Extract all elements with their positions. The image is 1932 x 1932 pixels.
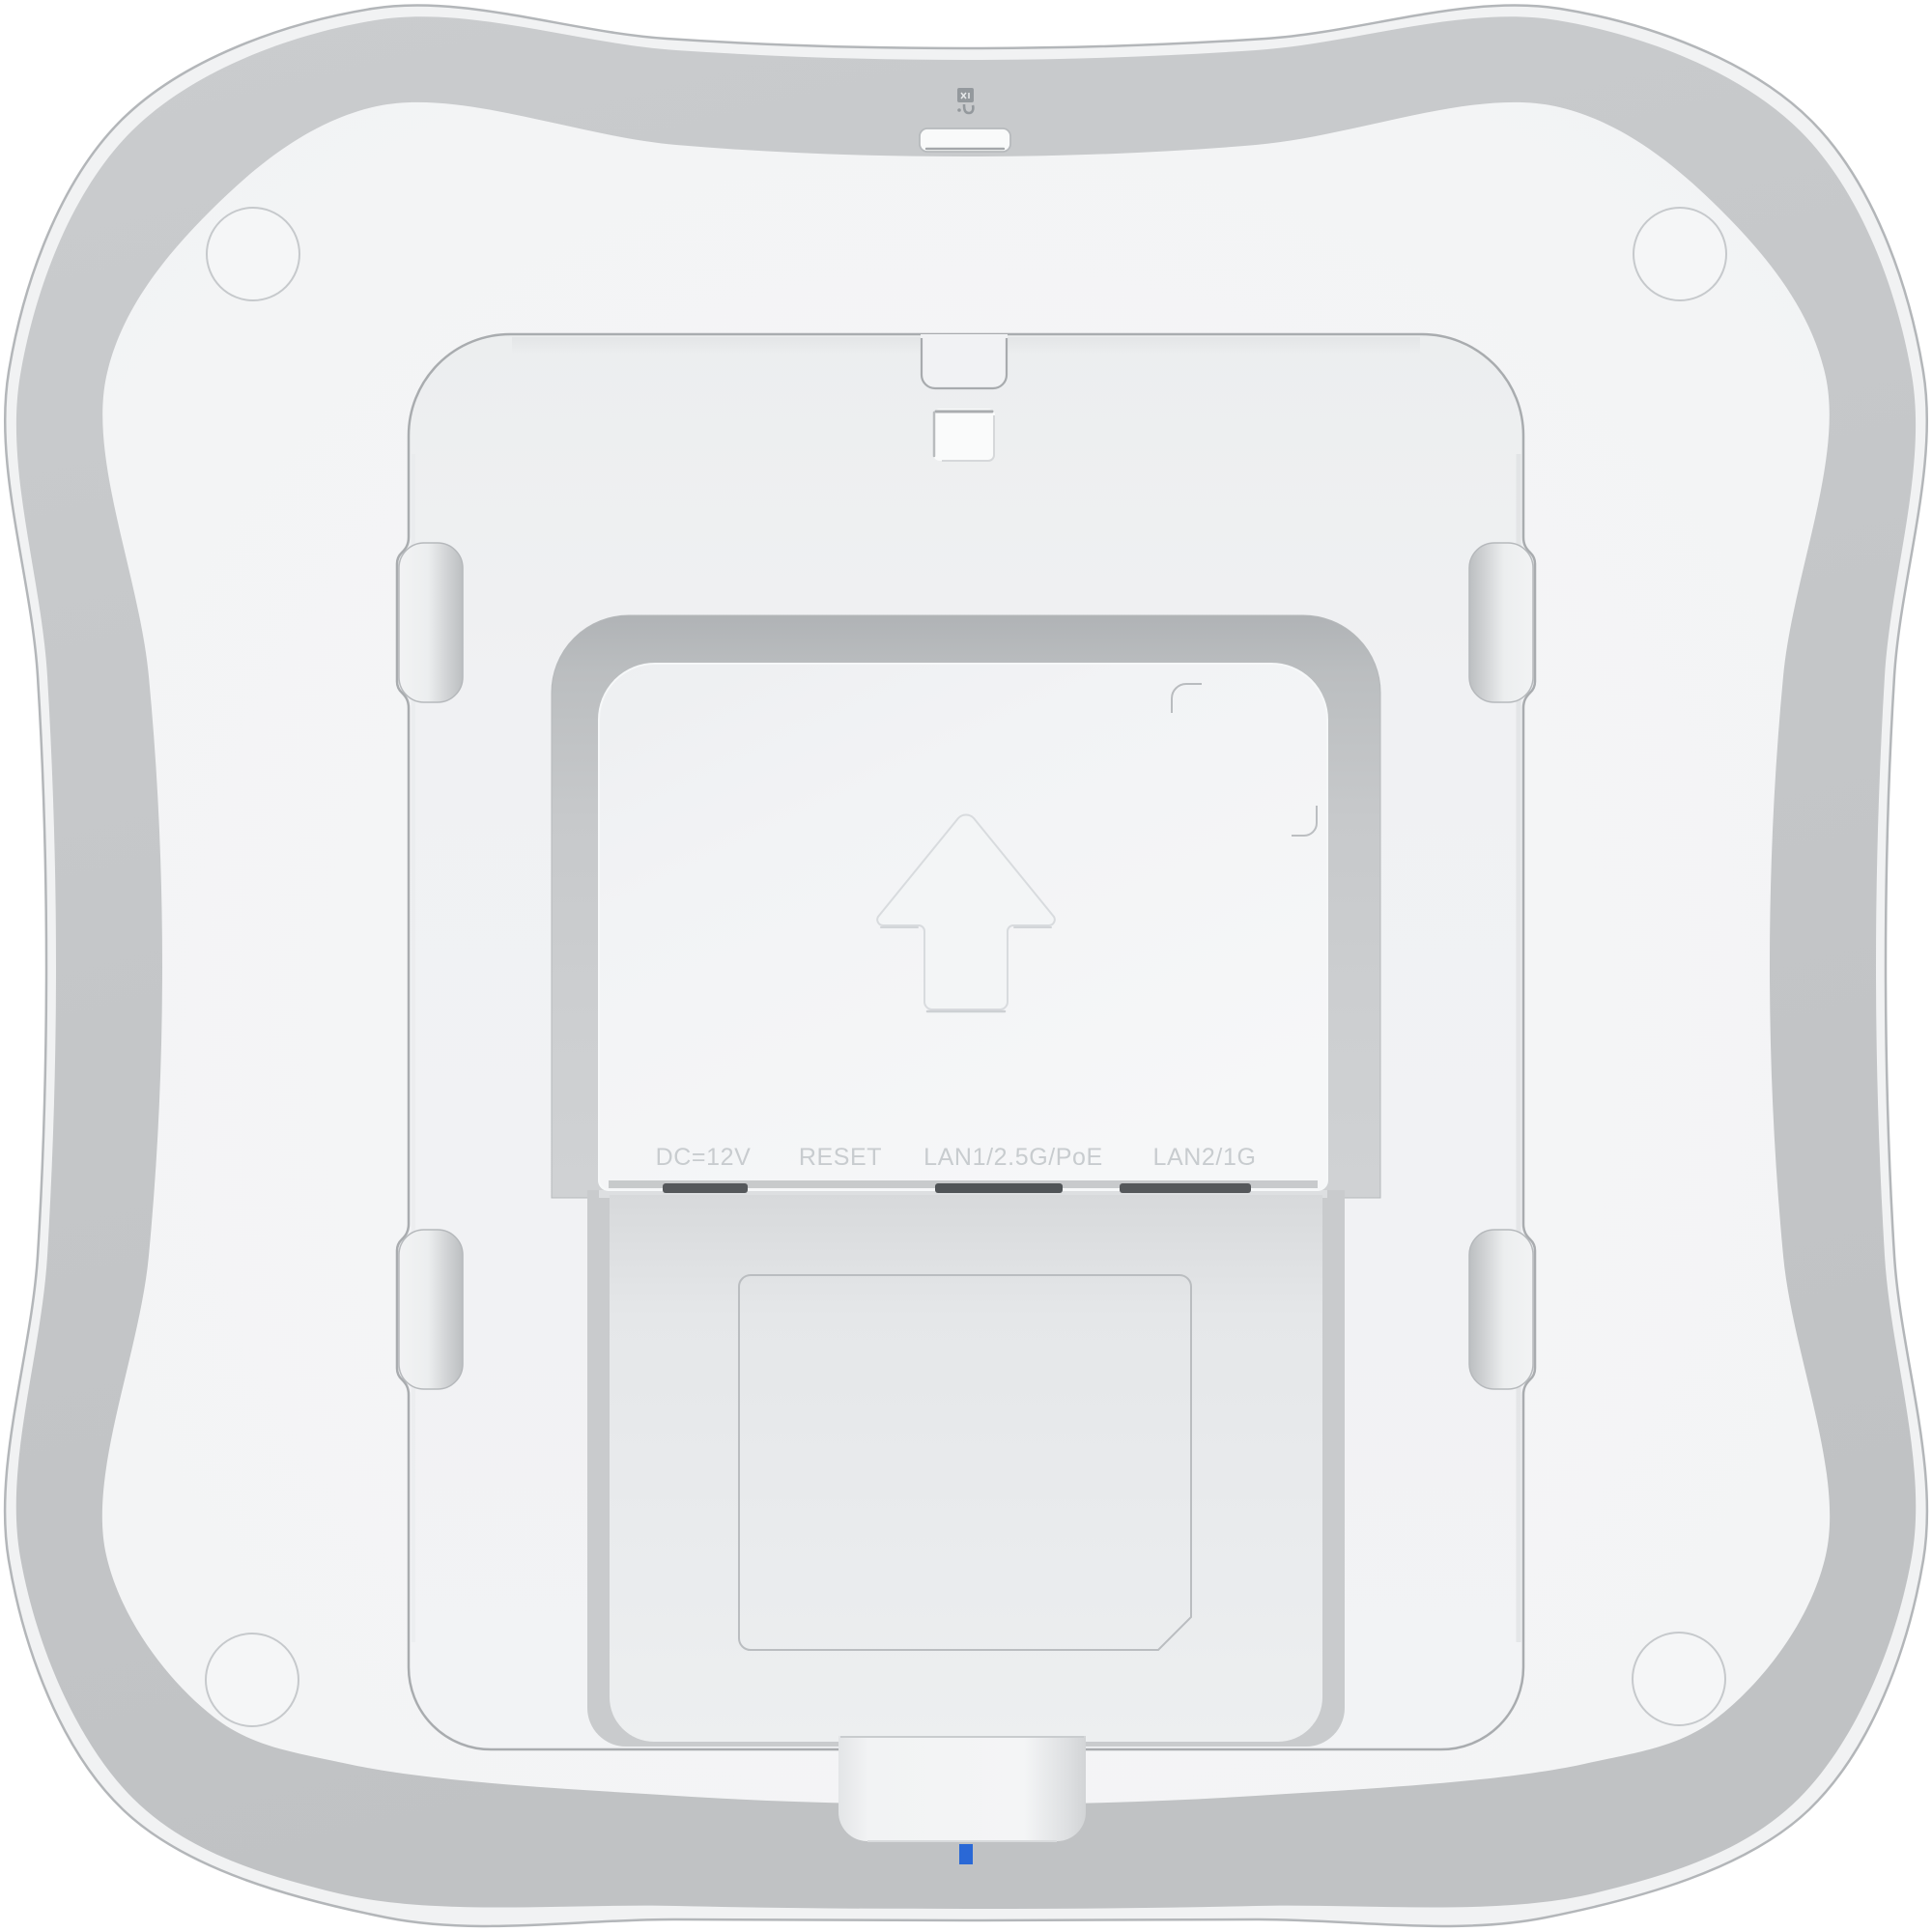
svg-text:LAN2/1G: LAN2/1G [1152, 1144, 1256, 1171]
svg-text:RESET: RESET [799, 1144, 882, 1171]
svg-text:DC=12V: DC=12V [656, 1144, 752, 1171]
svg-text:LAN1/2.5G/PoE: LAN1/2.5G/PoE [923, 1144, 1103, 1171]
